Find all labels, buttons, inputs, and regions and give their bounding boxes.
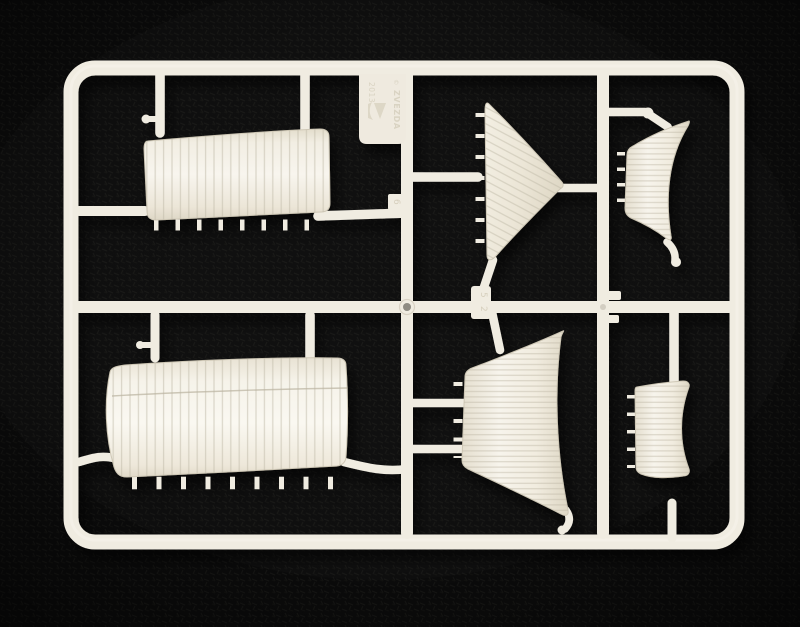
gate-ball bbox=[643, 108, 654, 119]
maker-tag-year: 2013 bbox=[367, 82, 376, 103]
gate-ball bbox=[142, 115, 151, 124]
part-large-square-sail-upper-left bbox=[144, 129, 330, 225]
small-blank-tab-lower bbox=[606, 315, 619, 323]
part-small-square-sail-lower-right bbox=[631, 381, 689, 478]
gate-ball bbox=[671, 257, 681, 267]
number-tab-label-2: 2 bbox=[478, 306, 488, 312]
gate-topleft-right bbox=[318, 213, 407, 216]
sprue-photo-canvas: 2013 © ZVEZDA 5 2 6 bbox=[0, 0, 800, 627]
sail-cloth-ribs bbox=[635, 381, 689, 478]
maker-tag-brand: ZVEZDA bbox=[392, 90, 401, 130]
copyright-symbol: © bbox=[392, 79, 400, 86]
sail-panel-seams bbox=[106, 358, 347, 477]
number-tab-label-5: 5 bbox=[478, 292, 488, 298]
number-tab-label-6: 6 bbox=[391, 199, 401, 205]
maker-tag: 2013 © ZVEZDA bbox=[359, 74, 406, 144]
gate-ball bbox=[136, 341, 144, 349]
part-large-square-sail-lower-left bbox=[106, 358, 347, 483]
photo-model-kit-sprue: 2013 © ZVEZDA 5 2 6 bbox=[0, 0, 800, 627]
sail-panel-seams bbox=[144, 129, 330, 220]
gate-ball bbox=[558, 526, 567, 535]
pin-mark-center bbox=[403, 303, 411, 311]
small-blank-tab-upper bbox=[607, 291, 621, 300]
pin-mark-right bbox=[600, 304, 606, 310]
number-tab-25 bbox=[471, 286, 491, 319]
